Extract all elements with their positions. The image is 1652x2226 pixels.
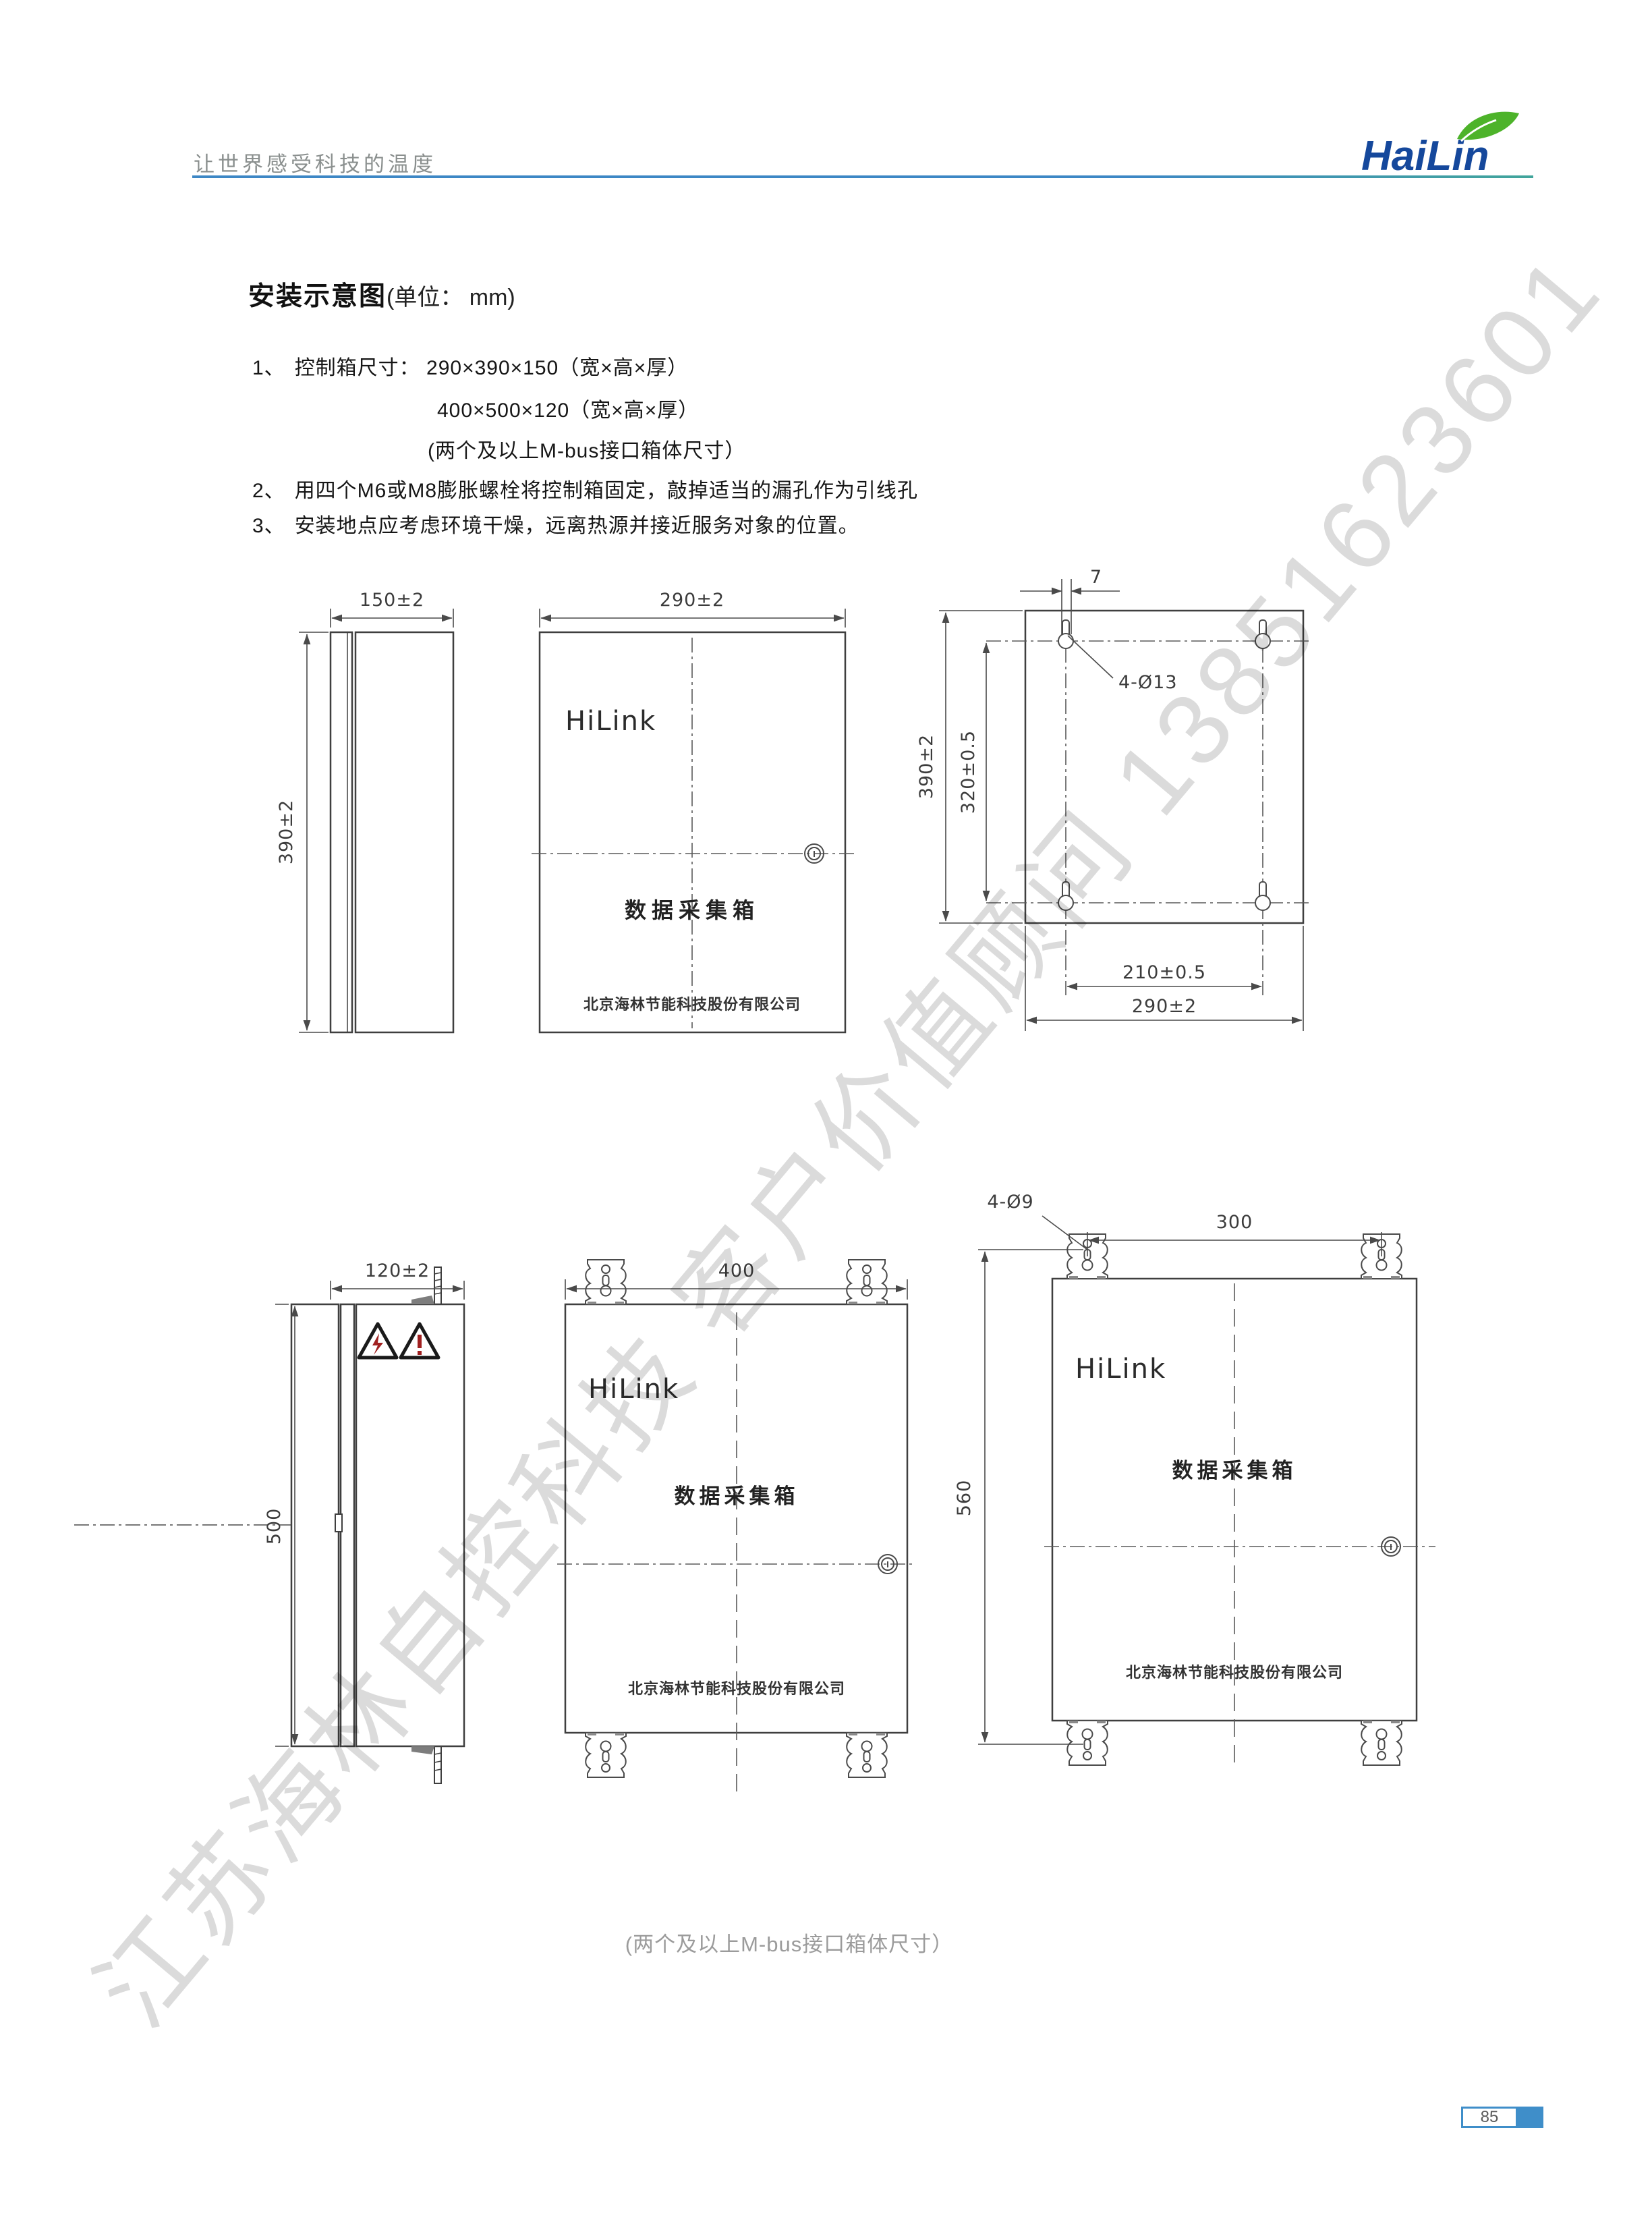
warning-exclamation-icon <box>401 1324 438 1358</box>
dim-depth-150: 150±2 <box>360 590 424 611</box>
technical-drawings: 150±2 390±2 290±2 HiLink 数据采集箱 北京海林节能科技股… <box>0 0 1652 2226</box>
dim-back-hole-v-320: 320±0.5 <box>958 730 979 814</box>
company-name-text: 北京海林节能科技股份有限公司 <box>628 1680 845 1698</box>
drawings-caption: (两个及以上M-bus接口箱体尺寸） <box>519 1927 1059 1957</box>
lock-icon <box>1382 1537 1400 1556</box>
dim-back-height-390: 390±2 <box>916 734 937 799</box>
mounting-bracket <box>1067 1721 1108 1765</box>
dim-holes-4d13: 4-Ø13 <box>1118 672 1178 693</box>
keyhole-bottom-left <box>1058 882 1073 910</box>
hilink-brand-text: HiLink <box>1075 1354 1166 1385</box>
company-name-text: 北京海林节能科技股份有限公司 <box>583 996 801 1013</box>
box-label-text: 数据采集箱 <box>1172 1459 1297 1483</box>
keyhole-top-right <box>1255 620 1270 648</box>
dim-width-290: 290±2 <box>660 590 724 611</box>
box-label-text: 数据采集箱 <box>625 897 760 923</box>
keyhole-bottom-right <box>1255 882 1270 910</box>
box-label-text: 数据采集箱 <box>675 1484 799 1509</box>
page-number: 85 <box>1461 2107 1543 2128</box>
mounting-bracket <box>847 1733 887 1777</box>
document-page: 让世界感受科技的温度 HaiLin 安装示意图(单位： mm) 1、控制箱尺寸：… <box>0 0 1652 2226</box>
mounting-bracket <box>586 1260 626 1304</box>
warning-electric-icon <box>359 1324 397 1358</box>
company-name-text: 北京海林节能科技股份有限公司 <box>1126 1664 1343 1681</box>
small-box-side-view <box>331 632 453 1032</box>
lock-icon <box>878 1555 897 1574</box>
mounting-bracket <box>847 1260 887 1304</box>
dim-holes-4d9: 4-Ø9 <box>987 1192 1033 1213</box>
small-box-back-dims <box>939 579 1303 1031</box>
lock-icon <box>805 844 824 863</box>
dim-height-500: 500 <box>264 1508 285 1545</box>
small-box-back-view <box>1025 611 1303 923</box>
small-box-front-centerlines <box>532 638 855 1028</box>
mounting-bracket <box>586 1733 626 1777</box>
dim-back-width-290: 290±2 <box>1132 996 1197 1017</box>
small-box-front-dims <box>540 609 845 628</box>
dim-slot-7: 7 <box>1090 567 1102 588</box>
small-box-side-dims <box>299 609 453 1032</box>
page-number-accent <box>1518 2107 1543 2128</box>
dim-hole-span-300: 300 <box>1216 1212 1253 1233</box>
dim-back-height-560: 560 <box>954 1480 975 1517</box>
dim-width-400: 400 <box>718 1260 756 1281</box>
dim-depth-120: 120±2 <box>365 1260 430 1281</box>
page-number-value: 85 <box>1461 2107 1518 2128</box>
hilink-brand-text: HiLink <box>588 1374 679 1405</box>
dim-height-390-side: 390±2 <box>276 800 297 864</box>
hilink-brand-text: HiLink <box>565 706 656 737</box>
dim-back-hole-h-210: 210±0.5 <box>1122 962 1206 983</box>
mounting-bracket <box>1361 1721 1402 1765</box>
